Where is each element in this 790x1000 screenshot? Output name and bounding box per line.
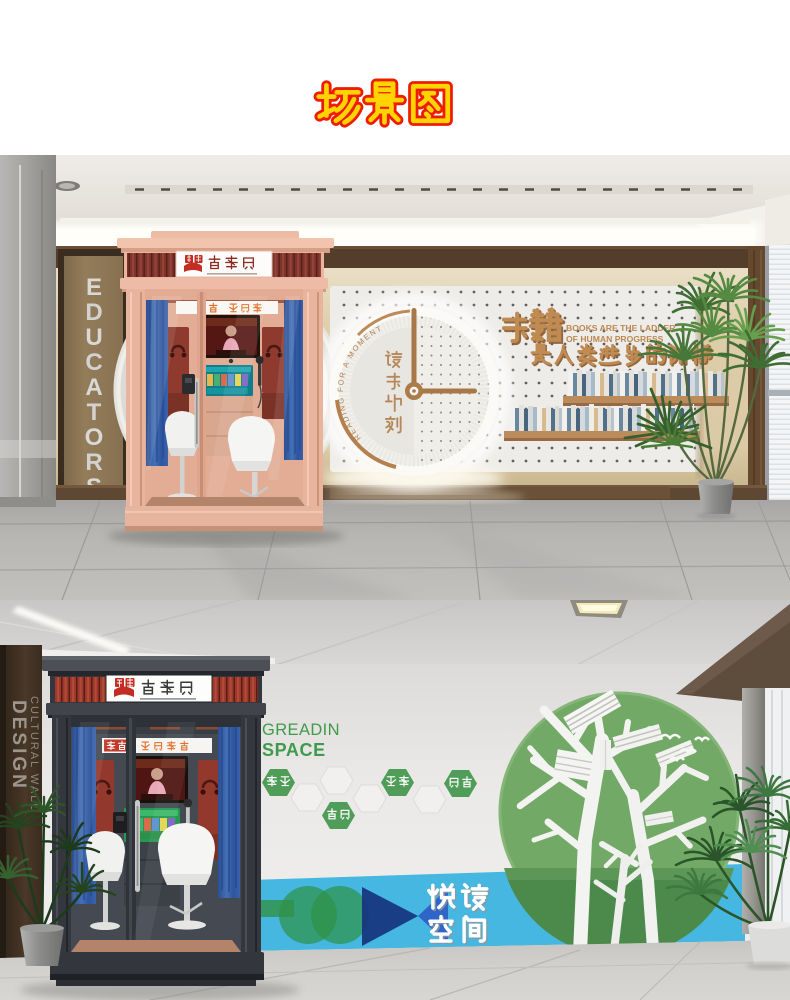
svg-text:SPACE: SPACE (262, 740, 326, 760)
svg-text:OF HUMAN PROGRESS: OF HUMAN PROGRESS (566, 334, 664, 344)
svg-text:GREADIN: GREADIN (262, 721, 340, 739)
svg-text:O: O (85, 424, 104, 451)
svg-text:DESIGN: DESIGN (8, 700, 29, 791)
svg-text:D: D (85, 299, 102, 326)
svg-text:T: T (87, 399, 102, 426)
svg-text:A: A (85, 374, 102, 401)
svg-text:E: E (86, 274, 102, 301)
svg-text:C: C (85, 349, 102, 376)
svg-text:U: U (85, 324, 102, 351)
svg-text:R: R (85, 449, 102, 476)
